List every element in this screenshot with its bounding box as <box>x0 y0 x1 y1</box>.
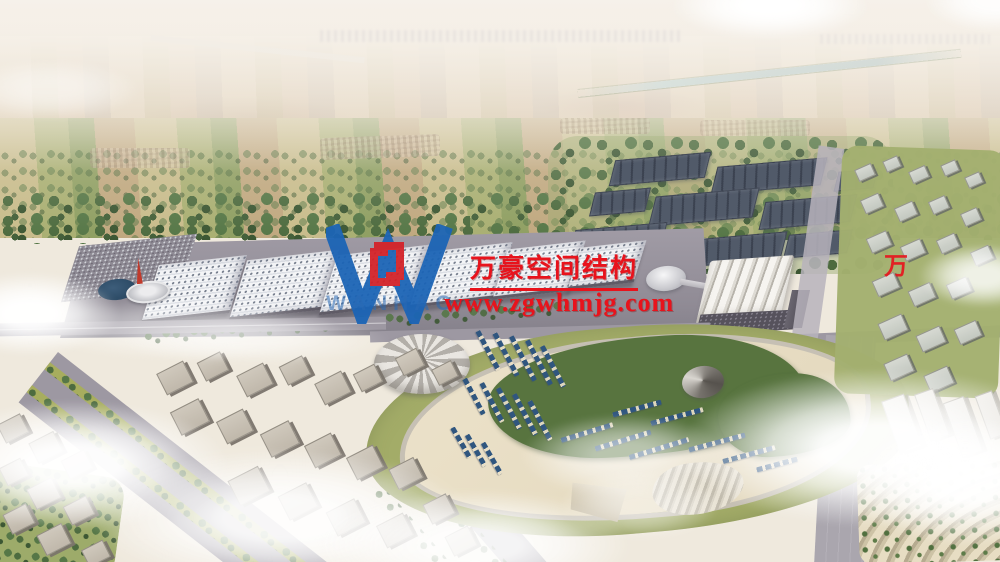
aerial-rendering-exhibition-complex: WANHAO 万豪空间结构 www.zgwhmjg.com 万 <box>0 0 1000 562</box>
building <box>236 362 274 397</box>
cloud <box>560 470 720 540</box>
watermark-website-url: www.zgwhmjg.com <box>444 288 674 318</box>
watermark-company-name: 万豪空间结构 <box>470 248 638 291</box>
watermark-repeat-fragment: 万 <box>884 246 908 281</box>
village-patch <box>700 120 810 136</box>
village-patch <box>560 118 650 134</box>
distant-city-skyline <box>320 30 680 42</box>
village-patch <box>90 148 190 168</box>
building <box>156 360 194 395</box>
building <box>216 409 254 445</box>
village-patch <box>320 134 441 160</box>
distant-city-skyline <box>820 34 990 44</box>
building <box>314 370 352 405</box>
